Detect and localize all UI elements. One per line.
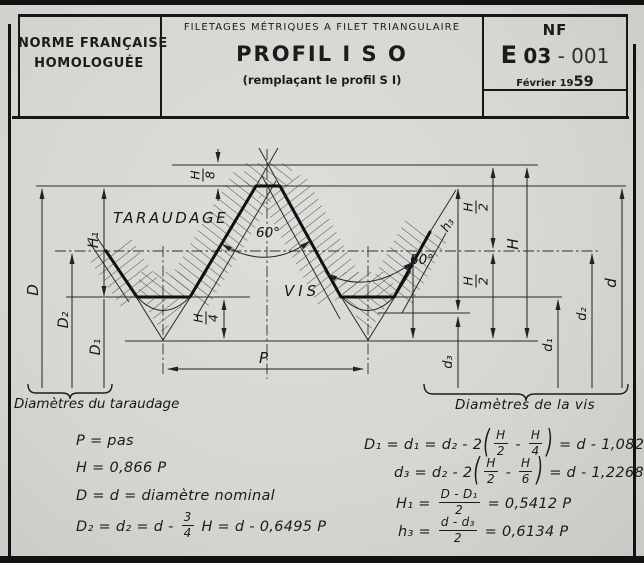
formula-h3: h₃ = d - d₃2 = 0,6134 P [398, 518, 568, 546]
formula-h: H = 0,866 P [76, 460, 166, 476]
svg-text:2: 2 [476, 203, 491, 211]
svg-text:H: H [461, 276, 476, 286]
formula-p-pas: P = pas [76, 433, 134, 449]
angle-60-right-label: 60° [410, 252, 434, 268]
svg-text:H: H [461, 202, 476, 212]
angle-60-left-label: 60° [256, 225, 280, 241]
svg-text:2: 2 [476, 277, 491, 285]
pitch-label: P [259, 349, 269, 367]
vis-label: VIS [284, 282, 320, 300]
dim-label-H4: H 4 [191, 312, 221, 325]
scanned-standard-page: NORME FRANÇAISE HOMOLOGUÉE FILETAGES MÉT… [0, 0, 644, 563]
dim-label-d1: d₁ [541, 338, 556, 351]
dim-label-d3: d₃ [441, 355, 456, 368]
dim-label-D1: D₁ [88, 339, 104, 355]
taraudage-label: TARAUDAGE [113, 209, 228, 227]
brace-left-caption: Diamètres du taraudage [14, 396, 179, 412]
dim-label-H8: H 8 [188, 169, 218, 182]
dim-label-H1: H₁ [86, 232, 102, 248]
dim-label-H2-lower: H 2 [461, 275, 491, 288]
dim-label-D: D [24, 284, 42, 296]
dim-label-D2: D₂ [56, 311, 72, 328]
svg-text:4: 4 [206, 314, 221, 322]
formula-d2: D₂ = d₂ = d - 34 H = d - 0,6495 P [76, 513, 326, 541]
formula-d3: d₃ = d₂ - 2(H2 - H6) = d - 1,2268 P [394, 459, 644, 487]
formula-d1: D₁ = d₁ = d₂ - 2(H2 - H4) = d - 1,0825 P [364, 431, 644, 459]
dim-label-d2: d₂ [575, 307, 590, 320]
dim-label-d: d [602, 278, 620, 288]
brace-right-caption: Diamètres de la vis [455, 397, 595, 413]
formula-h1: H₁ = D - D₁2 = 0,5412 P [396, 490, 571, 518]
dim-label-H: H [504, 238, 522, 249]
svg-text:H: H [188, 170, 203, 180]
svg-text:8: 8 [203, 171, 218, 179]
dim-label-H2-upper: H 2 [461, 201, 491, 214]
svg-text:H: H [191, 313, 206, 323]
dim-label-h3: h₃ [438, 215, 458, 234]
formula-d-nominal: D = d = diamètre nominal [76, 488, 275, 504]
